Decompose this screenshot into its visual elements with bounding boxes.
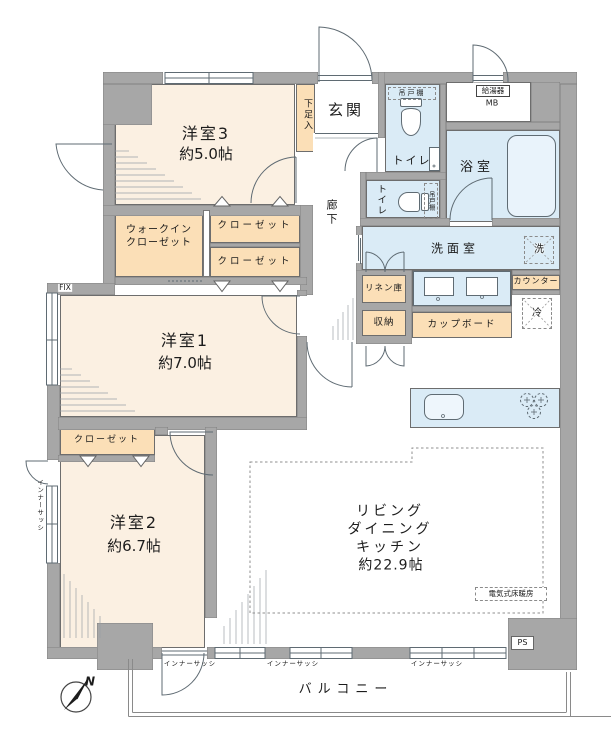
floor-plan: 洋室3 約5.0帖 ウォークイン クローゼット クローゼット クローゼット 下足… bbox=[0, 0, 613, 750]
ldk-name: リビング bbox=[356, 504, 424, 519]
kitchen-sink bbox=[424, 394, 464, 420]
vanity-sink bbox=[466, 277, 498, 296]
bedroom3-name: 洋室3 bbox=[182, 125, 230, 143]
storage-cabinet-label: 収納 bbox=[373, 318, 394, 328]
wall-segment bbox=[97, 623, 153, 670]
wall-segment bbox=[366, 172, 446, 180]
walk-in-closet-label: クローゼット bbox=[126, 238, 192, 249]
meter-box-label: MB bbox=[486, 100, 498, 109]
wall-segment bbox=[356, 226, 362, 236]
walk-in-closet-label: ウォークイン bbox=[126, 225, 192, 236]
water-heater-label: 給湯器 bbox=[476, 85, 510, 97]
wall-segment bbox=[297, 336, 307, 430]
balcony-label: バルコニー bbox=[299, 683, 394, 697]
closet-bedroom1-label: クローゼット bbox=[217, 257, 292, 267]
washer-space-label: 洗 bbox=[524, 236, 554, 264]
closet-bedroom2-label: クローゼット bbox=[74, 436, 140, 446]
pipe-space-label: PS bbox=[511, 636, 534, 650]
wall-segment bbox=[155, 427, 168, 435]
vanity-sink bbox=[424, 277, 454, 296]
hallway-floor bbox=[295, 152, 315, 205]
inner-sash-label: インナーサッシ bbox=[35, 479, 42, 532]
ldk-name: ダイニング bbox=[348, 522, 433, 537]
wall-segment bbox=[265, 647, 290, 659]
hallway-floor bbox=[360, 133, 378, 172]
bedroom1-name: 洋室1 bbox=[161, 332, 209, 350]
bedroom1-area: 約7.0帖 bbox=[158, 355, 212, 372]
wic-sliding-panel bbox=[203, 210, 210, 277]
wall-segment bbox=[297, 290, 307, 296]
ldk-name: キッチン bbox=[356, 540, 424, 555]
wall-segment bbox=[360, 218, 450, 226]
wall-segment bbox=[58, 417, 307, 430]
bedroom2-area: 約6.7帖 bbox=[107, 538, 161, 555]
compass-north-label: N bbox=[85, 675, 95, 688]
hallway-floor bbox=[313, 133, 360, 342]
wall-segment bbox=[378, 72, 385, 138]
entrance-label: 玄関 bbox=[328, 102, 364, 119]
hallway-floor bbox=[307, 295, 313, 342]
bedroom3-area: 約5.0帖 bbox=[179, 146, 233, 163]
wall-segment bbox=[205, 427, 217, 618]
ldk-floor bbox=[217, 430, 307, 647]
toilet-bowl bbox=[401, 108, 421, 136]
wall-segment bbox=[115, 277, 307, 285]
refrigerator-space-label: 冷 bbox=[522, 298, 552, 329]
toilet-upper-label: トイレ bbox=[393, 155, 432, 167]
floor-heating-label: 電気式床暖房 bbox=[475, 587, 547, 601]
cupboard-label: カップボード bbox=[427, 320, 496, 330]
kitchen-counter-label: カウンター bbox=[514, 278, 559, 287]
hallway-label: 廊下 bbox=[325, 199, 337, 227]
bathroom-label: 浴室 bbox=[460, 161, 494, 175]
wall-segment bbox=[58, 455, 155, 462]
wall-segment bbox=[560, 84, 577, 630]
wall-segment bbox=[253, 72, 318, 84]
wall-segment bbox=[352, 647, 410, 659]
wall-segment bbox=[210, 243, 300, 247]
bathtub bbox=[507, 135, 556, 217]
wall-segment bbox=[512, 290, 560, 295]
hanging-cupboard-label: 吊戸棚 bbox=[388, 87, 436, 100]
toilet-lower-label: トイレ bbox=[375, 184, 385, 216]
wall-segment bbox=[103, 84, 152, 125]
inner-sash-label: インナーサッシ bbox=[411, 660, 463, 667]
linen-cabinet-label: リネン庫 bbox=[365, 284, 403, 293]
wall-segment bbox=[446, 122, 560, 130]
shoe-cabinet-label: 下足入 bbox=[301, 99, 311, 132]
ldk-floor bbox=[307, 342, 560, 392]
fix-window-label: FIX bbox=[58, 284, 72, 292]
wall-segment bbox=[492, 218, 560, 226]
ldk-floor bbox=[412, 338, 512, 344]
hanging-cupboard-label: 吊戸棚 bbox=[424, 183, 438, 219]
wall-segment bbox=[531, 82, 560, 122]
wall-segment bbox=[207, 647, 215, 659]
ldk-floor bbox=[307, 392, 560, 647]
toilet-bowl bbox=[398, 192, 420, 212]
washroom-label: 洗面室 bbox=[431, 242, 479, 255]
inner-sash-label: インナーサッシ bbox=[164, 660, 216, 667]
wall-segment bbox=[103, 72, 163, 84]
ldk-area: 約22.9帖 bbox=[358, 558, 423, 573]
bedroom2-name: 洋室2 bbox=[110, 514, 158, 532]
wall-segment bbox=[47, 563, 60, 648]
inner-sash-label: インナーサッシ bbox=[267, 660, 319, 667]
closet-bedroom3-label: クローゼット bbox=[217, 221, 292, 231]
